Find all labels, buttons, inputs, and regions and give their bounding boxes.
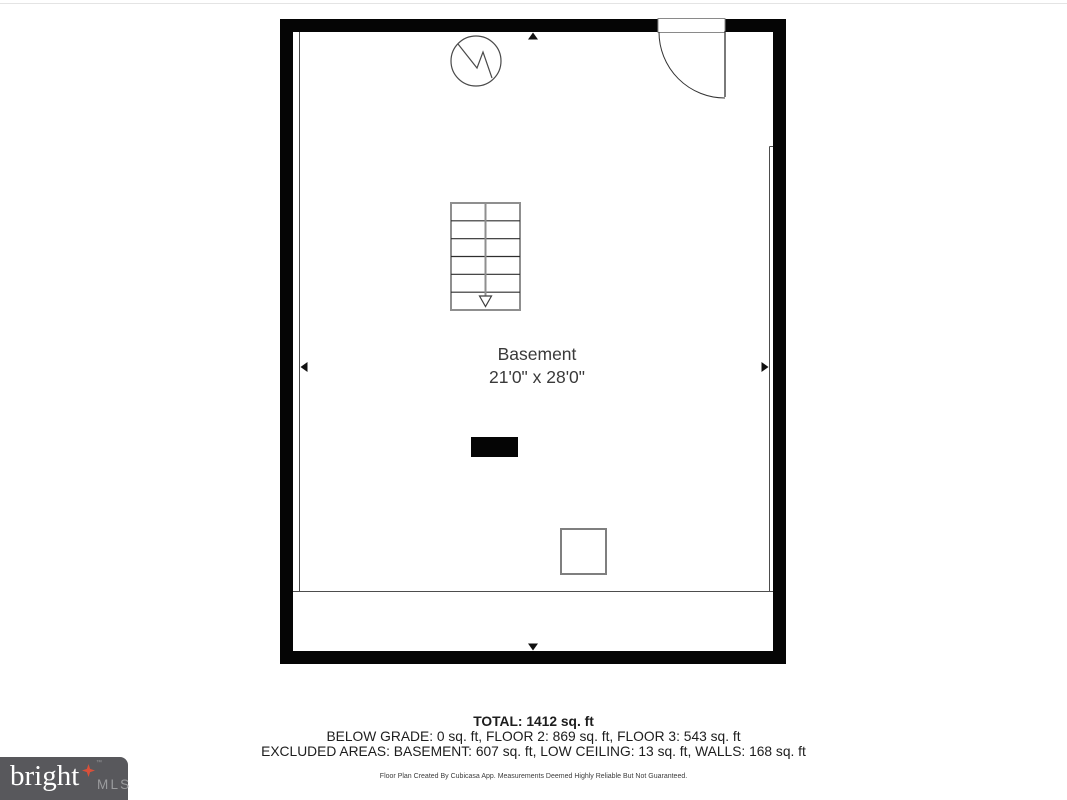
logo-suffix: MLS: [97, 777, 131, 792]
room-label: Basement 21'0" x 28'0": [489, 343, 585, 388]
room-dimensions: 21'0" x 28'0": [489, 366, 585, 389]
staircase: [451, 203, 520, 310]
dimension-arrows: [301, 33, 769, 651]
utility-box: [561, 529, 606, 574]
disclaimer-text: Floor Plan Created By Cubicasa App. Meas…: [0, 773, 1067, 780]
floor-plan-page: Basement 21'0" x 28'0" TOTAL: 1412 sq. f…: [0, 0, 1067, 800]
brightmls-logo: bright ™ MLS: [0, 757, 128, 800]
entry-door: [658, 19, 725, 99]
logo-wordmark: bright: [10, 761, 79, 791]
arrow-down-icon: [528, 644, 538, 651]
door-opening: [658, 19, 725, 33]
arrow-left-icon: [301, 362, 308, 372]
excluded-areas-text: EXCLUDED AREAS: BASEMENT: 607 sq. ft, LO…: [0, 744, 1067, 759]
room-name: Basement: [489, 343, 585, 366]
total-area-text: TOTAL: 1412 sq. ft: [0, 714, 1067, 729]
arrow-right-icon: [762, 362, 769, 372]
interior-wall-lines: [293, 32, 773, 592]
area-summary: TOTAL: 1412 sq. ft BELOW GRADE: 0 sq. ft…: [0, 714, 1067, 760]
trademark-symbol: ™: [96, 760, 102, 766]
exterior-walls: [287, 26, 780, 658]
support-column: [471, 437, 518, 457]
door-swing-arc: [659, 32, 725, 98]
floor-plan-drawing: [0, 0, 1067, 800]
arrow-up-icon: [528, 33, 538, 40]
water-heater-icon: [451, 36, 501, 86]
star-icon: [82, 764, 95, 777]
floor-areas-text: BELOW GRADE: 0 sq. ft, FLOOR 2: 869 sq. …: [0, 729, 1067, 744]
